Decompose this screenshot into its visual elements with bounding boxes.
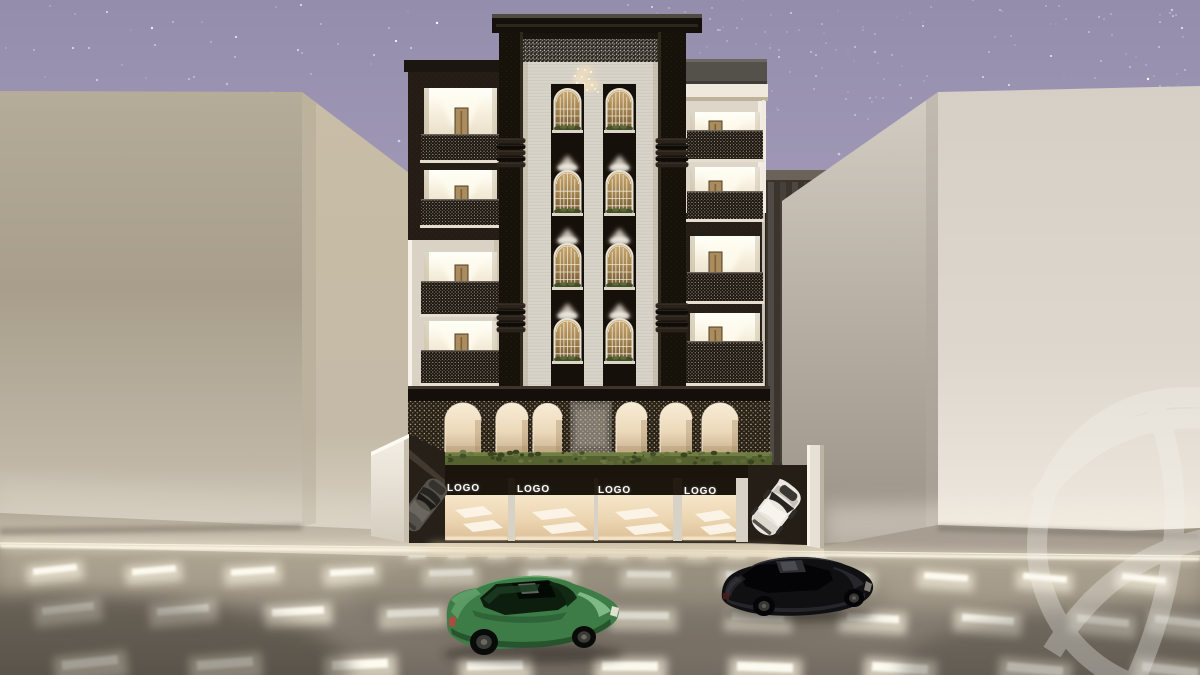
svg-text:LOGO: LOGO <box>517 484 550 495</box>
svg-text:LOGO: LOGO <box>598 485 631 496</box>
svg-text:LOGO: LOGO <box>684 486 717 497</box>
svg-text:LOGO: LOGO <box>447 483 480 494</box>
